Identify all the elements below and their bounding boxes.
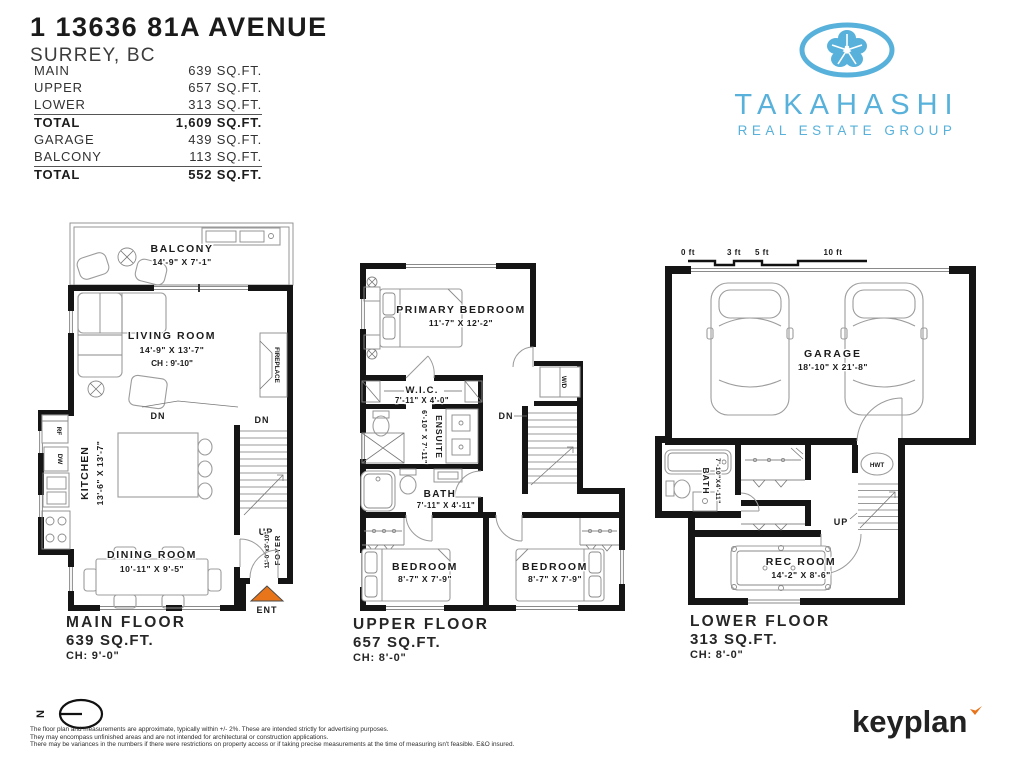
dining-room: DINING ROOM 10'-11" X 9'-5"	[84, 547, 221, 608]
table-row: MAIN639 SQ.FT.	[34, 63, 262, 80]
living-room-label: LIVING ROOM	[128, 330, 216, 342]
dining-room-label: DINING ROOM	[107, 549, 197, 561]
table-row: LOWER313 SQ.FT.	[34, 97, 262, 115]
laundry-closet: W/D	[540, 367, 580, 397]
address-block: 1 13636 81A AVENUE SURREY, BC	[30, 12, 328, 67]
table-row-total: TOTAL552 SQ.FT.	[34, 167, 262, 184]
lower-floor-caption: LOWER FLOOR 313 SQ.FT. CH: 8'-0"	[690, 613, 830, 662]
table-row: BALCONY113 SQ.FT.	[34, 149, 262, 167]
upper-floor-caption: UPPER FLOOR 657 SQ.FT. CH: 8'-0"	[353, 616, 489, 665]
scale-3ft: 3 ft	[727, 248, 741, 257]
ensuite-label: ENSUITE	[434, 415, 444, 459]
floor-area: 313 SQ.FT.	[690, 631, 830, 648]
upper-bath: BATH 7'-11" X 4'-11"	[361, 469, 475, 511]
row-label: TOTAL	[34, 168, 80, 182]
floor-ceiling: CH: 8'-0"	[690, 648, 830, 662]
row-value: 552 SQ.FT.	[188, 168, 262, 182]
scale-0ft: 0 ft	[681, 248, 695, 257]
row-label: MAIN	[34, 64, 70, 78]
table-row: UPPER657 SQ.FT.	[34, 80, 262, 97]
washer-dryer-label: W/D	[560, 376, 567, 389]
floor-title: MAIN FLOOR	[66, 614, 186, 632]
fridge-label: RF	[55, 427, 62, 436]
bath-label: BATH	[424, 489, 457, 500]
disclaimer-text: The floor plan and measurements are appr…	[30, 726, 680, 749]
bedroom-2-dims: 8'-7" X 7'-9"	[528, 574, 582, 584]
row-value: 439 SQ.FT.	[188, 133, 262, 147]
garage-dims: 18'-10" X 21'-8"	[798, 362, 868, 372]
dn-step-label: DN	[151, 411, 166, 421]
lower-bath: BATH 7'-10"X4'-11"	[665, 450, 731, 511]
row-label: BALCONY	[34, 150, 102, 164]
row-value: 313 SQ.FT.	[188, 98, 262, 112]
dining-room-dims: 10'-11" X 9'-5"	[120, 564, 184, 574]
primary-bedroom-dims: 11'-7" X 12'-2"	[429, 318, 493, 328]
row-value: 657 SQ.FT.	[188, 81, 262, 95]
rec-room: REC ROOM 14'-2" X 8'-6"	[731, 546, 836, 591]
lower-stairs: HWT UP	[834, 453, 898, 530]
living-room: FIREPLACE LIVING ROOM 14'-9" X 13'-7" CH…	[78, 293, 287, 421]
table-row-total: TOTAL1,609 SQ.FT.	[34, 115, 262, 132]
row-value: 1,609 SQ.FT.	[176, 116, 262, 130]
floor-title: UPPER FLOOR	[353, 616, 489, 634]
disclaimer-line: The floor plan and measurements are appr…	[30, 726, 680, 734]
lower-floor-plan: 0 ft 3 ft 5 ft 10 ft GARAGE 18'-10" X 21…	[653, 238, 988, 623]
fireplace-label: FIREPLACE	[273, 347, 280, 383]
disclaimer-line: There may be variances in the numbers if…	[30, 741, 680, 749]
floor-ceiling: CH: 9'-0"	[66, 649, 186, 663]
balcony: BALCONY 14'-9" X 7'-1"	[70, 223, 293, 286]
entry-label: ENT	[257, 605, 278, 615]
row-label: GARAGE	[34, 133, 94, 147]
car-1	[707, 283, 793, 415]
scale-5ft: 5 ft	[755, 248, 769, 257]
bedroom-1-label: BEDROOM	[392, 561, 458, 573]
bedroom-2: BEDROOM 8'-7" X 7'-9"	[516, 518, 619, 601]
lower-bath-label: BATH	[701, 468, 711, 495]
up-label: UP	[834, 517, 849, 527]
dishwasher-label: DW	[56, 454, 63, 465]
garage: GARAGE 18'-10" X 21'-8"	[665, 266, 976, 445]
kitchen-label: KITCHEN	[79, 446, 91, 500]
disclaimer-line: They may encompass unfinished areas and …	[30, 734, 680, 742]
hwt-label: HWT	[870, 462, 884, 469]
dn-label: DN	[499, 411, 514, 421]
floor-area: 639 SQ.FT.	[66, 632, 186, 649]
floor-area: 657 SQ.FT.	[353, 634, 489, 651]
living-room-ch: CH : 9'-10"	[151, 358, 193, 368]
keyplan-wordmark: keyplan	[852, 704, 967, 739]
area-table: MAIN639 SQ.FT. UPPER657 SQ.FT. LOWER313 …	[34, 63, 262, 184]
hall-closets	[741, 448, 805, 530]
kitchen-dims: 13'-6" X 13'-7"	[95, 441, 105, 506]
kitchen: RF DW KITCHEN 13'-6" X 13'-7"	[42, 415, 212, 549]
rec-room-label: REC ROOM	[766, 556, 837, 568]
north-label: N	[35, 710, 47, 718]
main-floor-caption: MAIN FLOOR 639 SQ.FT. CH: 9'-0"	[66, 614, 186, 663]
primary-bedroom: PRIMARY BEDROOM 11'-7" X 12'-2"	[364, 277, 526, 359]
bedroom-2-label: BEDROOM	[522, 561, 588, 573]
row-value: 639 SQ.FT.	[188, 64, 262, 78]
logo-flower-icon	[795, 22, 899, 80]
logo-tagline-text: REAL ESTATE GROUP	[688, 123, 1006, 138]
balcony-label: BALCONY	[150, 243, 213, 255]
brokerage-logo: TAKAHASHI REAL ESTATE GROUP	[688, 22, 1006, 138]
ensuite: ENSUITE 6'-10" X 7'-11"	[362, 409, 478, 464]
living-room-dims: 14'-9" X 13'-7"	[140, 345, 205, 355]
logo-brand-text: TAKAHASHI	[688, 89, 1006, 122]
page-title: 1 13636 81A AVENUE	[30, 12, 328, 43]
row-value: 113 SQ.FT.	[189, 150, 262, 164]
upper-floor-plan: PRIMARY BEDROOM 11'-7" X 12'-2" W/D DN W…	[348, 255, 648, 620]
bath-dims: 7'-11" X 4'-11"	[417, 501, 475, 510]
ensuite-dims: 6'-10" X 7'-11"	[420, 410, 427, 464]
main-floor-plan: BALCONY 14'-9" X 7'-1"	[30, 215, 315, 665]
bedroom-1-dims: 8'-7" X 7'-9"	[398, 574, 452, 584]
stairs-foyer: DN UP FOYER 11'-0"x3'-10"	[240, 415, 287, 578]
balcony-dims: 14'-9" X 7'-1"	[152, 257, 211, 267]
row-label: TOTAL	[34, 116, 80, 130]
bedroom-1: BEDROOM 8'-7" X 7'-9"	[362, 518, 458, 601]
entry: ENT	[251, 586, 283, 615]
walk-in-closet: W.I.C. 7'-11" X 4'-0"	[362, 381, 482, 405]
scale-10ft: 10 ft	[824, 248, 843, 257]
wic-dims: 7'-11" X 4'-0"	[395, 396, 449, 405]
row-label: LOWER	[34, 98, 86, 112]
garage-label: GARAGE	[804, 348, 862, 360]
floor-title: LOWER FLOOR	[690, 613, 830, 631]
wic-label: W.I.C.	[405, 385, 438, 396]
rec-room-dims: 14'-2" X 8'-6"	[771, 570, 830, 580]
lower-bath-dims: 7'-10"X4'-11"	[714, 458, 721, 504]
row-label: UPPER	[34, 81, 83, 95]
primary-bedroom-label: PRIMARY BEDROOM	[396, 304, 526, 316]
scale-bar: 0 ft 3 ft 5 ft 10 ft	[681, 248, 867, 265]
upper-stairs: DN	[499, 411, 578, 485]
keyplan-check-icon	[969, 706, 983, 716]
table-row: GARAGE439 SQ.FT.	[34, 132, 262, 149]
keyplan-logo: keyplan	[852, 704, 967, 740]
floor-ceiling: CH: 8'-0"	[353, 651, 489, 665]
dn-stairs-label: DN	[255, 415, 270, 425]
